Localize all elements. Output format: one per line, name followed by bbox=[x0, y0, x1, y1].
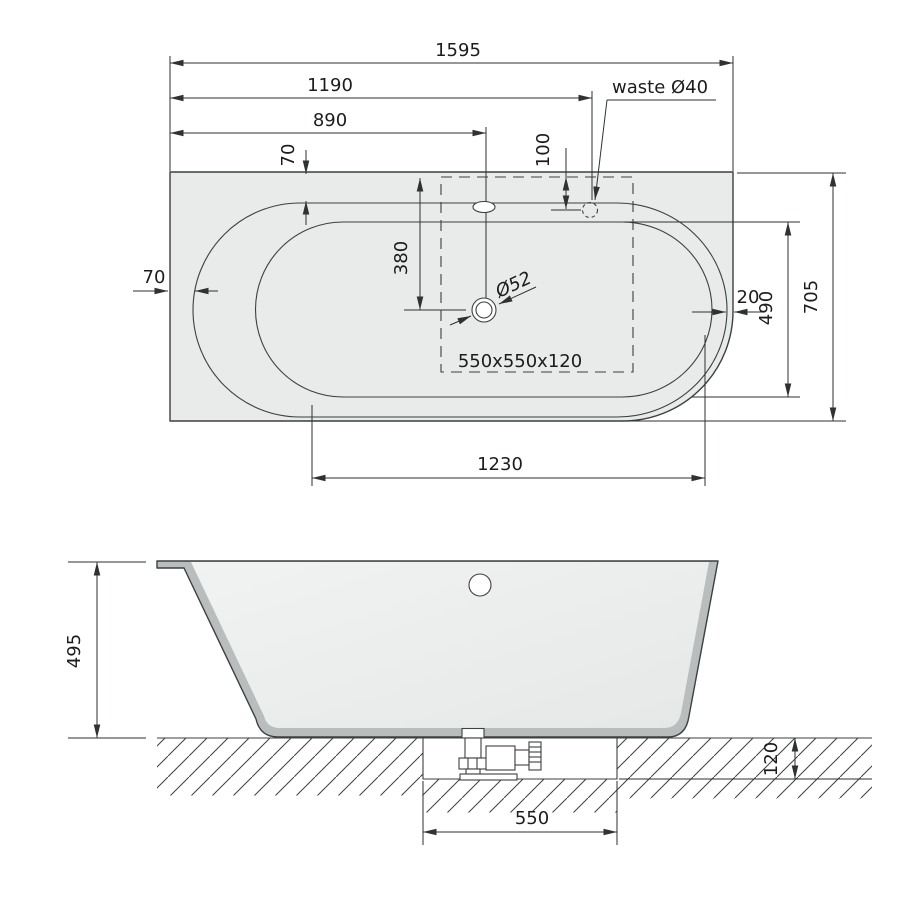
drain-stub bbox=[466, 769, 480, 774]
dim-text-890: 890 bbox=[313, 110, 347, 131]
bathtub-technical-drawing-page: 1595 1190 890 70 100 380 70 20 490 bbox=[0, 0, 900, 900]
dim-text-100: 100 bbox=[533, 133, 554, 167]
dim-text-495: 495 bbox=[64, 634, 85, 668]
dim-text-550: 550 bbox=[515, 808, 549, 829]
side-view: 495 120 550 bbox=[64, 561, 872, 845]
dim-text-490: 490 bbox=[756, 291, 777, 325]
waste-label: waste Ø40 bbox=[612, 77, 708, 98]
top-view: 1595 1190 890 70 100 380 70 20 490 bbox=[133, 40, 846, 486]
dim-text-1595: 1595 bbox=[435, 40, 481, 61]
tub-side-interior bbox=[191, 562, 709, 728]
overflow-hole-side bbox=[469, 574, 491, 596]
dim-text-380: 380 bbox=[391, 241, 412, 275]
drain-pipe-body bbox=[465, 738, 481, 758]
drain-hole-inner bbox=[476, 302, 492, 318]
dim-text-1190: 1190 bbox=[307, 75, 353, 96]
technical-drawing: 1595 1190 890 70 100 380 70 20 490 bbox=[0, 0, 900, 900]
drain-nut bbox=[459, 758, 487, 769]
ground-hatch-right bbox=[617, 739, 872, 799]
overflow-hole-top bbox=[473, 202, 495, 213]
dim-text-120: 120 bbox=[761, 742, 782, 776]
dim-text-70-left: 70 bbox=[143, 267, 166, 288]
tub-plan-outline bbox=[170, 172, 733, 421]
ground-hatch-left bbox=[157, 739, 423, 796]
support-area-label: 550x550x120 bbox=[458, 351, 582, 372]
dim-text-70-top: 70 bbox=[278, 144, 299, 167]
dim-text-1230: 1230 bbox=[477, 454, 523, 475]
drain-flange bbox=[462, 729, 484, 739]
dim-text-705: 705 bbox=[801, 280, 822, 314]
trap-knob bbox=[529, 742, 541, 770]
drain-base-plate bbox=[460, 774, 517, 780]
trap-neck bbox=[515, 750, 529, 765]
trap-elbow-body bbox=[486, 746, 515, 770]
